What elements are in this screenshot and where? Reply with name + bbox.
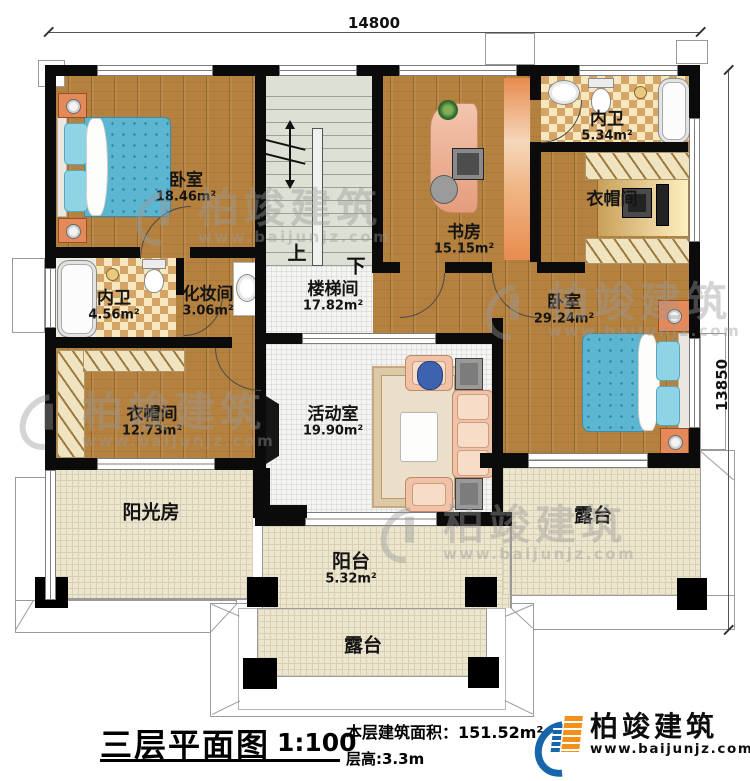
- cushion: [457, 422, 489, 448]
- sliding-door: [528, 453, 648, 468]
- study-runner-rug: [504, 78, 530, 260]
- floor-plan: 卧室 18.46m² 楼梯间 17.82m² 书房 15.15m² 内卫 5.3…: [0, 0, 750, 781]
- stair-up-label: 上: [287, 239, 306, 266]
- tv: [266, 396, 279, 464]
- clothes-rack: [57, 350, 85, 458]
- room-name: 卧室: [156, 172, 216, 191]
- potted-plant: [438, 100, 458, 120]
- wall-segment: [253, 505, 307, 518]
- pillar: [468, 657, 499, 688]
- room-label-bath-tr: 内卫 5.34m²: [581, 111, 632, 144]
- room-name: 活动室: [303, 406, 363, 425]
- wall-segment: [373, 262, 400, 273]
- room-label-cloakroom-r: 衣帽间: [587, 191, 638, 210]
- room-area: 3.06m²: [182, 304, 233, 318]
- wall-segment: [255, 333, 302, 344]
- brand-logo: 柏竣建筑 www.baijunjz.com: [536, 712, 750, 770]
- wall-segment: [437, 512, 512, 526]
- stair-direction-arrow: [289, 128, 291, 180]
- wall-segment: [436, 333, 503, 344]
- room-name: 书房: [434, 224, 494, 243]
- wall-segment: [541, 142, 688, 152]
- shower-head: [634, 86, 647, 99]
- nightstand: [58, 93, 87, 118]
- window: [97, 65, 213, 76]
- nightstand-knob: [66, 224, 81, 239]
- wall-segment: [537, 262, 585, 273]
- wall-segment: [445, 262, 492, 273]
- brand-text: 柏竣建筑 www.baijunjz.com: [590, 712, 750, 757]
- title-underline: [100, 759, 340, 762]
- bathtub: [658, 78, 690, 144]
- wall-segment: [255, 65, 266, 470]
- room-label-bedroom-r: 卧室 29.24m²: [534, 294, 594, 327]
- room-name: 衣帽间: [587, 191, 638, 210]
- platform-top-right: [676, 40, 708, 64]
- window: [45, 268, 56, 328]
- bed-pillow: [64, 123, 88, 165]
- stair-stringer: [312, 128, 323, 266]
- wall-segment: [372, 65, 383, 273]
- window: [279, 65, 357, 76]
- room-area: 18.46m²: [156, 190, 216, 204]
- stair-down-label: 下: [346, 252, 365, 279]
- wall-segment: [480, 453, 528, 468]
- bed-blanket-fold: [86, 118, 108, 216]
- room-label-cloakroom-l: 衣帽间 12.73m²: [122, 406, 182, 439]
- wall-segment: [45, 458, 97, 470]
- brand-logo-icon: [536, 712, 590, 770]
- arrow-up-icon: [285, 120, 295, 129]
- room-area: 5.32m²: [325, 572, 376, 586]
- wall-segment: [492, 318, 503, 526]
- cushion: [412, 483, 446, 506]
- sunroom-floor: [48, 468, 253, 600]
- room-label-bath-ml: 内卫 4.56m²: [88, 290, 139, 323]
- room-label-terrace-b: 露台: [344, 636, 382, 657]
- room-name: 内卫: [88, 290, 139, 309]
- toilet-tank: [588, 78, 614, 88]
- room-area: 5.34m²: [581, 129, 632, 143]
- window: [689, 118, 700, 242]
- wall-segment: [45, 337, 232, 348]
- sliding-door: [97, 458, 215, 470]
- wall-segment: [45, 247, 140, 258]
- wall-segment: [517, 65, 579, 76]
- bed-pillow: [656, 341, 680, 381]
- room-area: 15.15m²: [434, 242, 494, 256]
- platform-top-center: [485, 33, 535, 65]
- side-table: [455, 358, 483, 390]
- drawing-scale: 1:100: [277, 728, 357, 757]
- arrow-down-icon: [285, 180, 295, 189]
- brand-url: www.baijunjz.com: [590, 741, 750, 757]
- room-name: 化妆间: [182, 286, 233, 305]
- person-figure: [417, 361, 443, 390]
- room-label-sunroom: 阳光房: [122, 503, 179, 524]
- wall-segment: [213, 65, 279, 76]
- room-label-stairwell: 楼梯间 17.82m²: [303, 281, 363, 314]
- pillar: [465, 577, 497, 607]
- clothes-rack: [83, 350, 185, 372]
- wall-segment: [689, 65, 700, 118]
- window: [45, 470, 56, 600]
- floor-area-value: 151.52m²: [458, 723, 543, 742]
- toilet-bowl: [144, 269, 164, 293]
- nightstand-knob: [667, 309, 682, 324]
- window: [399, 65, 517, 76]
- room-label-activity: 活动室 19.90m²: [303, 406, 363, 439]
- desktop-computer: [452, 148, 484, 180]
- nightstand-knob: [66, 99, 81, 114]
- pillar: [243, 658, 277, 689]
- room-name: 露台: [344, 636, 382, 657]
- nightstand: [58, 218, 87, 243]
- nightstand: [658, 300, 690, 332]
- room-area: 12.73m²: [122, 424, 182, 438]
- sliding-door: [305, 512, 437, 526]
- dimension-line-top: [48, 32, 700, 33]
- room-label-makeup: 化妆间 3.06m²: [182, 286, 233, 319]
- clothes-rack: [585, 152, 690, 180]
- desk-chair: [430, 175, 458, 204]
- room-name: 衣帽间: [122, 406, 182, 425]
- brand-name: 柏竣建筑: [590, 712, 750, 741]
- bed-pillow: [656, 386, 680, 426]
- bay-left-bath: [12, 258, 45, 333]
- bed-mattress: [582, 333, 644, 432]
- logo-tower-orange: [561, 716, 583, 752]
- dimension-top-value: 14800: [348, 14, 400, 32]
- side-table: [455, 478, 483, 510]
- room-area: 29.24m²: [534, 312, 594, 326]
- nightstand-knob: [668, 435, 683, 450]
- room-name: 露台: [574, 506, 612, 527]
- room-name: 阳台: [325, 551, 376, 572]
- room-label-balcony: 阳台 5.32m²: [325, 551, 376, 586]
- floor-area-label: 本层建筑面积：: [346, 723, 458, 742]
- room-label-bedroom-tl: 卧室 18.46m²: [156, 172, 216, 205]
- wall-segment: [648, 453, 700, 468]
- room-name: 楼梯间: [303, 281, 363, 300]
- armchair: [405, 477, 453, 512]
- balcony-terrace-divider: [510, 526, 512, 608]
- wall-segment: [530, 142, 541, 262]
- bed-pillow: [64, 170, 88, 212]
- shower-head: [106, 268, 119, 281]
- room-area: 4.56m²: [88, 308, 139, 322]
- room-name: 卧室: [534, 294, 594, 313]
- nightstand: [660, 428, 689, 456]
- wall-segment: [530, 65, 541, 100]
- room-name: 内卫: [581, 111, 632, 130]
- pillar: [677, 578, 707, 610]
- room-area: 19.90m²: [303, 424, 363, 438]
- wall-segment: [45, 65, 56, 268]
- room-label-study: 书房 15.15m²: [434, 224, 494, 257]
- wall-segment: [689, 242, 700, 338]
- terrace-right-floor: [503, 468, 700, 595]
- floor-area-line: 本层建筑面积：151.52m²: [346, 719, 543, 743]
- floor-height-line: 层高:3.3m: [346, 748, 424, 769]
- clothes-rack: [585, 238, 690, 264]
- cushion: [457, 394, 489, 420]
- window: [579, 65, 678, 76]
- room-name: 阳光房: [122, 503, 179, 524]
- dimension-right-value: 13850: [713, 359, 731, 411]
- sliding-door: [302, 333, 436, 344]
- window: [689, 338, 700, 428]
- sunroom-south-line: [56, 598, 253, 600]
- pillar: [247, 577, 278, 607]
- dresser-mirror: [656, 184, 669, 226]
- dimension-line-right: [728, 70, 729, 630]
- coffee-table: [400, 412, 438, 462]
- toilet-tank: [142, 259, 166, 269]
- room-label-terrace-r: 露台: [574, 506, 612, 527]
- room-area: 17.82m²: [303, 299, 363, 313]
